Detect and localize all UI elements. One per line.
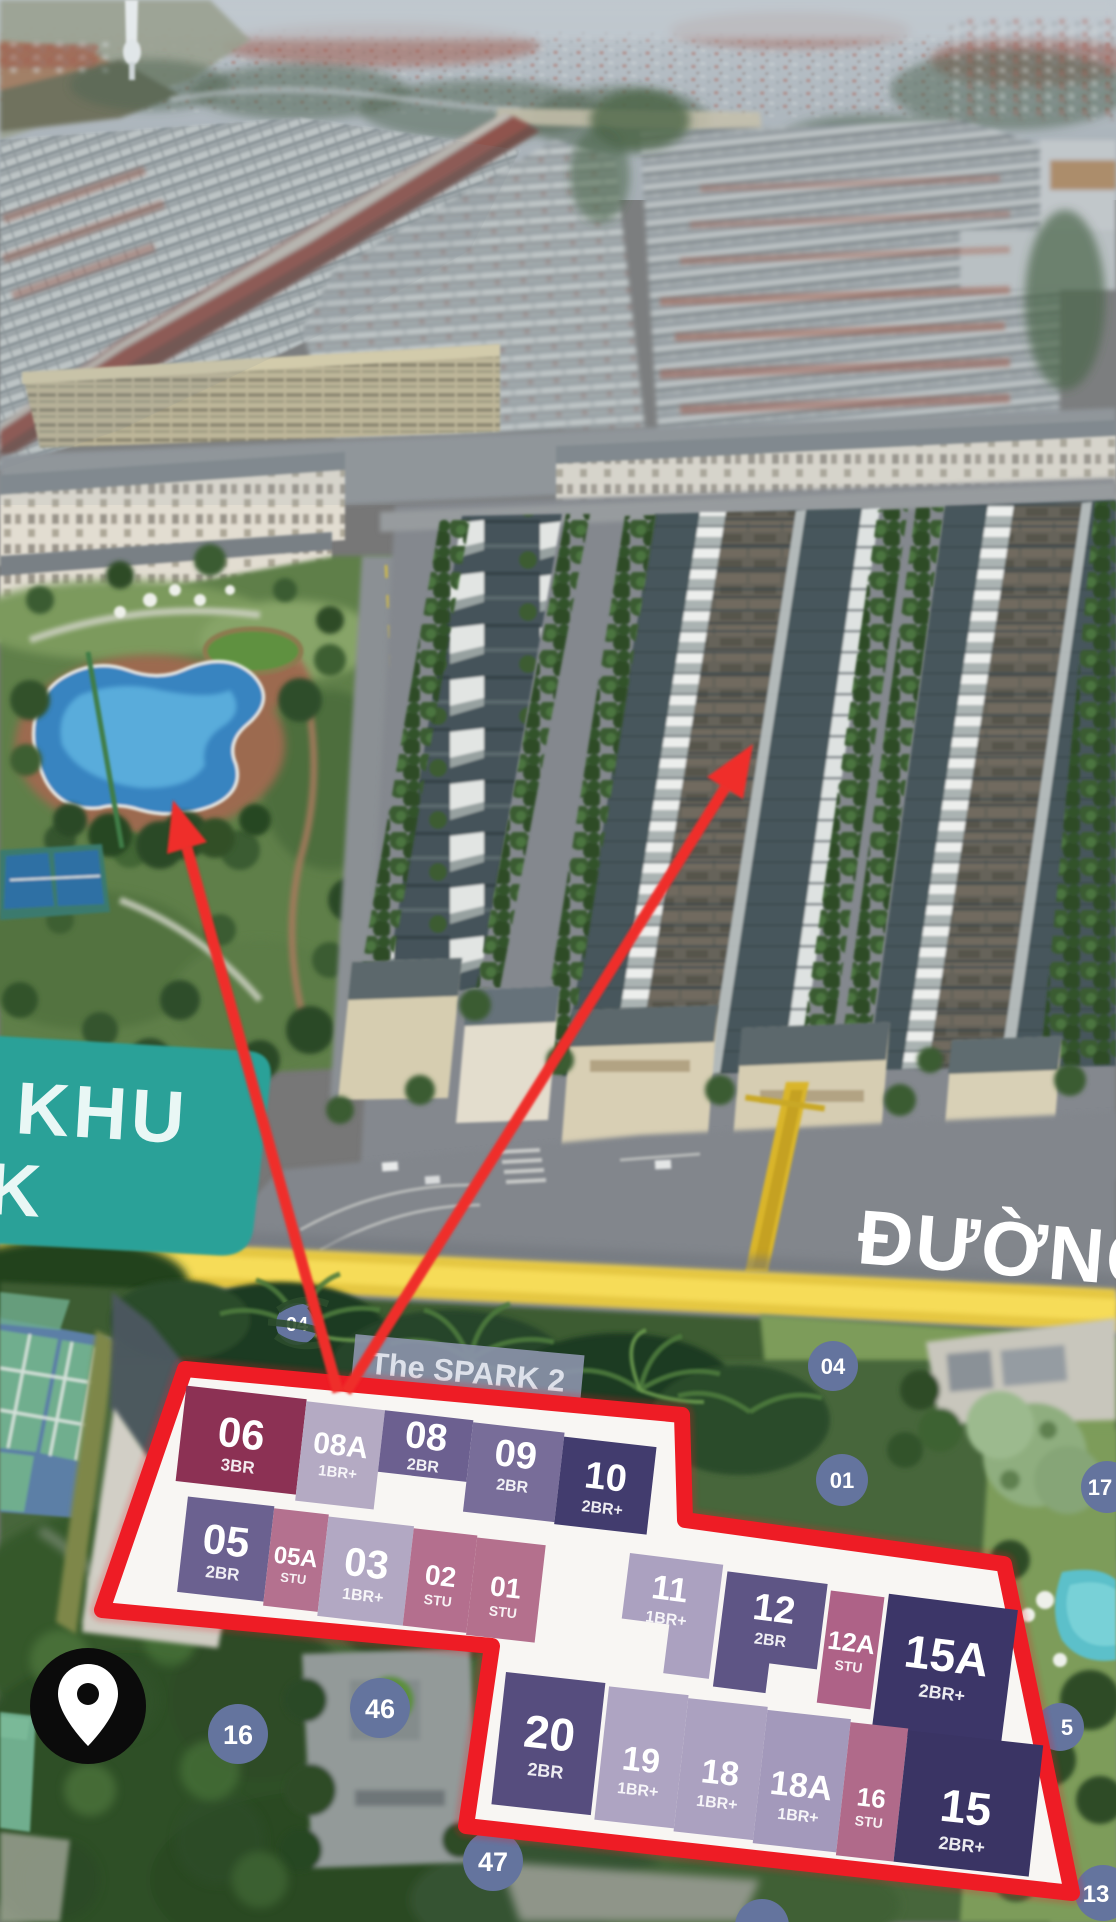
svg-text:47: 47 bbox=[478, 1847, 508, 1877]
svg-text:01: 01 bbox=[830, 1468, 854, 1493]
svg-text:15A: 15A bbox=[902, 1624, 992, 1686]
svg-text:05: 05 bbox=[200, 1515, 252, 1567]
svg-text:13: 13 bbox=[1083, 1881, 1110, 1908]
svg-text:2BR: 2BR bbox=[526, 1759, 564, 1783]
svg-text:10: 10 bbox=[582, 1454, 629, 1501]
svg-text:17: 17 bbox=[1088, 1475, 1112, 1500]
svg-text:08: 08 bbox=[403, 1414, 450, 1461]
svg-text:19: 19 bbox=[620, 1739, 662, 1781]
svg-text:STU: STU bbox=[854, 1812, 884, 1831]
svg-text:11: 11 bbox=[650, 1568, 690, 1610]
svg-text:2BR: 2BR bbox=[204, 1562, 240, 1585]
svg-text:STU: STU bbox=[280, 1569, 308, 1587]
svg-text:18: 18 bbox=[699, 1752, 741, 1794]
svg-text:08A: 08A bbox=[311, 1426, 369, 1465]
svg-text:09: 09 bbox=[492, 1432, 539, 1479]
svg-text:K: K bbox=[0, 1147, 47, 1233]
svg-text:STU: STU bbox=[488, 1602, 518, 1621]
svg-text:STU: STU bbox=[423, 1591, 453, 1610]
svg-text:03: 03 bbox=[342, 1540, 391, 1589]
svg-text:04: 04 bbox=[821, 1354, 846, 1379]
svg-text:01: 01 bbox=[488, 1570, 522, 1604]
svg-text:3BR: 3BR bbox=[220, 1455, 256, 1478]
svg-text:05A: 05A bbox=[272, 1542, 319, 1574]
svg-text:06: 06 bbox=[216, 1408, 268, 1460]
svg-text:20: 20 bbox=[521, 1704, 578, 1761]
svg-text:12: 12 bbox=[750, 1586, 797, 1633]
svg-text:16: 16 bbox=[223, 1720, 253, 1750]
svg-text:46: 46 bbox=[365, 1694, 395, 1724]
svg-text:15: 15 bbox=[938, 1779, 995, 1836]
svg-text:KHU: KHU bbox=[14, 1066, 191, 1159]
svg-text:5: 5 bbox=[1061, 1715, 1073, 1740]
svg-text:16: 16 bbox=[855, 1781, 887, 1814]
svg-text:18A: 18A bbox=[768, 1764, 834, 1809]
svg-text:02: 02 bbox=[423, 1559, 457, 1593]
svg-text:12A: 12A bbox=[826, 1625, 877, 1661]
